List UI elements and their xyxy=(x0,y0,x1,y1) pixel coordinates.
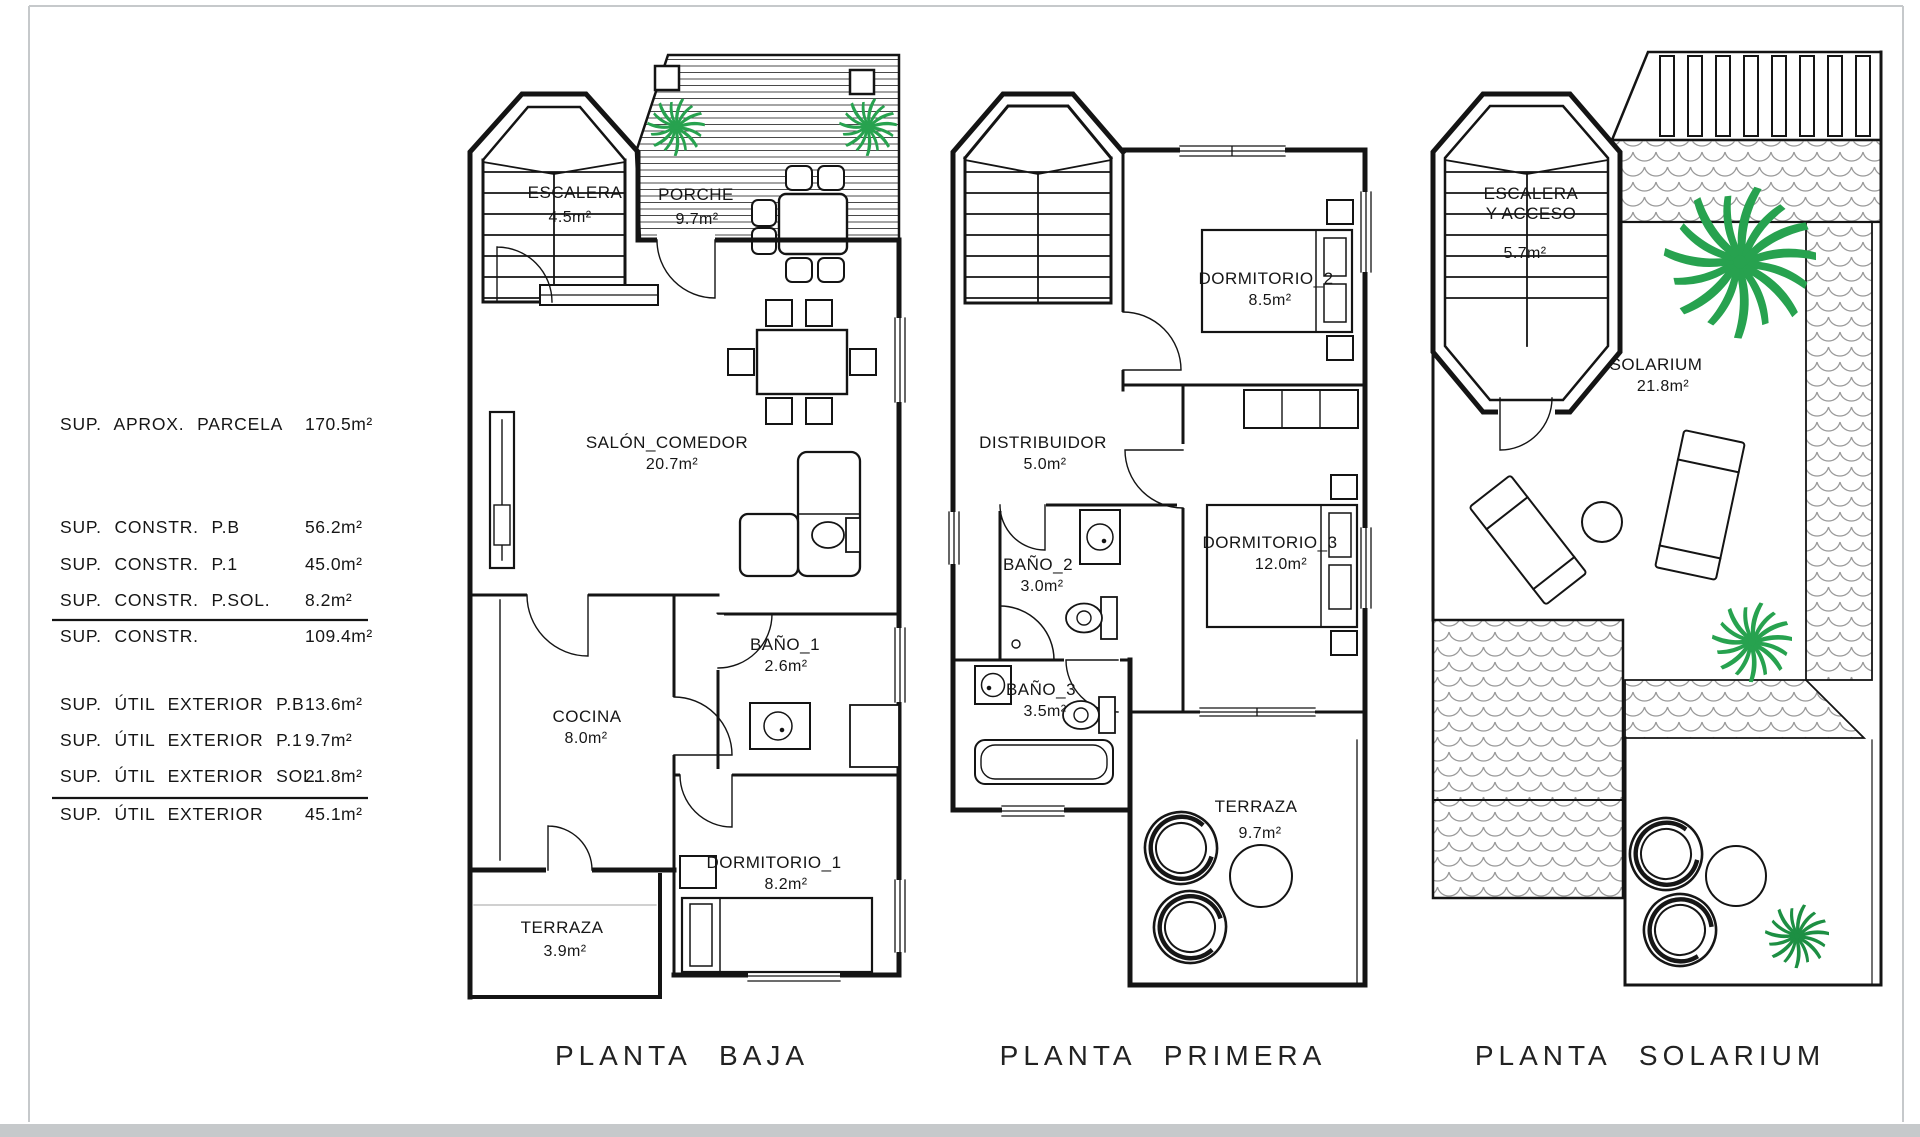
floor-plan-planta-solarium: ESCALERA Y ACCESO 5.7m² SOLARIUM 21.8m² … xyxy=(1433,52,1881,1071)
room-label: ESCALERA xyxy=(1484,184,1579,203)
shrub-plant-icon xyxy=(1765,904,1829,969)
table-row-label: SUP. CONSTR. P.1 xyxy=(60,554,238,574)
table-row-label: SUP. ÚTIL EXTERIOR SOL. xyxy=(60,765,319,786)
room-area: 3.5m² xyxy=(1024,703,1067,720)
room-area: 2.6m² xyxy=(765,658,808,675)
room-label: Y ACCESO xyxy=(1486,204,1577,223)
room-label: BAÑO_3 xyxy=(1006,680,1076,699)
table-row-label: SUP. APROX. PARCELA xyxy=(60,414,283,434)
room-label: BAÑO_2 xyxy=(1003,555,1073,574)
table-row-value: 170.5m² xyxy=(305,414,373,434)
doors xyxy=(527,233,732,877)
room-area: 8.2m² xyxy=(765,876,808,893)
shower-icon xyxy=(1000,606,1054,660)
nightstand xyxy=(1331,631,1357,655)
room-area: 3.9m² xyxy=(544,943,587,960)
room-label: BAÑO_1 xyxy=(750,635,820,654)
table-row-value: 56.2m² xyxy=(305,517,362,537)
room-label: SOLARIUM xyxy=(1610,355,1703,374)
plan-title: PLANTA PRIMERA xyxy=(1000,1040,1327,1071)
table-row-label: SUP. CONSTR. P.SOL. xyxy=(60,590,270,610)
room-area: 8.5m² xyxy=(1249,292,1292,309)
floor-plan-planta-primera: DORMITORIO_2 8.5m² DISTRIBUIDOR 5.0m² BA… xyxy=(946,94,1373,1071)
room-label: ESCALERA xyxy=(528,183,623,202)
room-label: DORMITORIO_2 xyxy=(1198,269,1333,288)
round-table xyxy=(1230,845,1292,907)
floor-plan-sheet: SUP. APROX. PARCELA 170.5m² SUP. CONSTR.… xyxy=(0,0,1920,1137)
table-row-label: SUP. ÚTIL EXTERIOR xyxy=(60,803,263,824)
room-label: SALÓN_COMEDOR xyxy=(586,433,748,452)
floor-plan-planta-baja: ESCALERA 4.5m² PORCHE 9.7m² SALÓN_COMEDO… xyxy=(470,55,907,1071)
room-area: 9.7m² xyxy=(676,211,719,228)
room-area: 9.7m² xyxy=(1239,825,1282,842)
pergola xyxy=(1612,52,1881,140)
room-area: 4.5m² xyxy=(549,209,592,226)
table-row-value: 109.4m² xyxy=(305,626,373,646)
floor-plan-drawing: SUP. APROX. PARCELA 170.5m² SUP. CONSTR.… xyxy=(0,0,1920,1137)
plan-title: PLANTA BAJA xyxy=(555,1040,809,1071)
closet xyxy=(1244,390,1358,428)
round-chair-icon xyxy=(1137,804,1225,892)
sun-lounger xyxy=(1469,475,1586,605)
room-label: TERRAZA xyxy=(521,918,604,937)
room-area: 21.8m² xyxy=(1637,378,1689,395)
sofa xyxy=(740,452,860,576)
table-row-value: 45.1m² xyxy=(305,804,362,824)
room-label: DISTRIBUIDOR xyxy=(979,433,1107,452)
room-label: DORMITORIO_3 xyxy=(1202,533,1337,552)
table-row-label: SUP. CONSTR. P.B xyxy=(60,517,240,537)
room-label: COCINA xyxy=(552,707,621,726)
side-table xyxy=(1582,502,1622,542)
bed xyxy=(680,856,872,972)
room-area: 5.0m² xyxy=(1024,456,1067,473)
palm-plant-icon xyxy=(1711,602,1792,683)
room-area: 12.0m² xyxy=(1255,556,1307,573)
fireplace-unit xyxy=(490,412,514,568)
table-row-label: SUP. ÚTIL EXTERIOR P.B xyxy=(60,693,304,714)
table-row-value: 13.6m² xyxy=(305,694,362,714)
door-opening xyxy=(1498,406,1555,418)
round-chair-icon xyxy=(1620,808,1712,900)
porch-planter xyxy=(850,70,874,94)
room-area: 8.0m² xyxy=(565,730,608,747)
round-chair-icon xyxy=(1146,883,1234,971)
sun-lounger xyxy=(1655,430,1745,580)
table-row-label: SUP. ÚTIL EXTERIOR P.1 xyxy=(60,729,303,750)
table-row-value: 8.2m² xyxy=(305,590,352,610)
room-area: 5.7m² xyxy=(1504,245,1547,262)
nightstand xyxy=(1331,475,1357,499)
room-area: 20.7m² xyxy=(646,456,698,473)
salon-dining-set xyxy=(728,300,876,424)
nightstand xyxy=(1327,336,1353,360)
porch-planter xyxy=(655,66,679,90)
stairs-icon xyxy=(965,160,1111,303)
plan-title: PLANTA SOLARIUM xyxy=(1475,1040,1825,1071)
table-row-value: 9.7m² xyxy=(305,730,352,750)
table-row-value: 45.0m² xyxy=(305,554,362,574)
nightstand xyxy=(1327,200,1353,224)
room-area: 3.0m² xyxy=(1021,578,1064,595)
table-row-label: SUP. CONSTR. xyxy=(60,626,199,646)
surface-area-table: SUP. APROX. PARCELA 170.5m² SUP. CONSTR.… xyxy=(52,414,373,824)
room-label: DORMITORIO_1 xyxy=(706,853,841,872)
round-table xyxy=(1706,846,1766,906)
room-label: TERRAZA xyxy=(1215,797,1298,816)
table-row-value: 21.8m² xyxy=(305,766,362,786)
room-label: PORCHE xyxy=(658,185,734,204)
